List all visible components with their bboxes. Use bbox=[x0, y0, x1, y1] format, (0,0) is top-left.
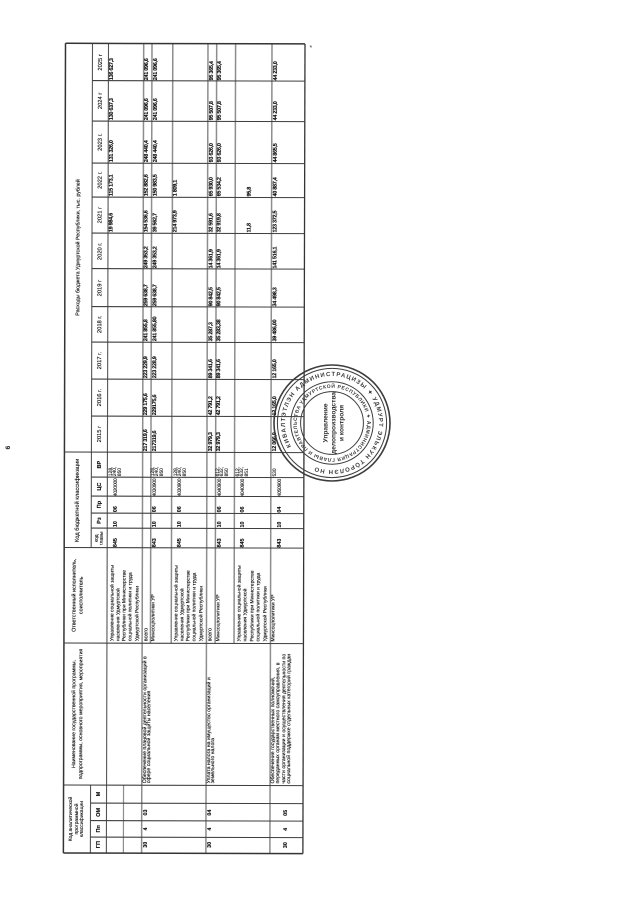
svg-text:ТЕЛЬСТВА УДМУРТСКОЙ РЕСПУБЛИКИ: ТЕЛЬСТВА УДМУРТСКОЙ РЕСПУБЛИКИ ✦ АДМИНИС… bbox=[0, 12, 383, 584]
svg-text:Управлениеделопроизводстваи ко: Управлениеделопроизводстваи контроля bbox=[323, 392, 346, 454]
